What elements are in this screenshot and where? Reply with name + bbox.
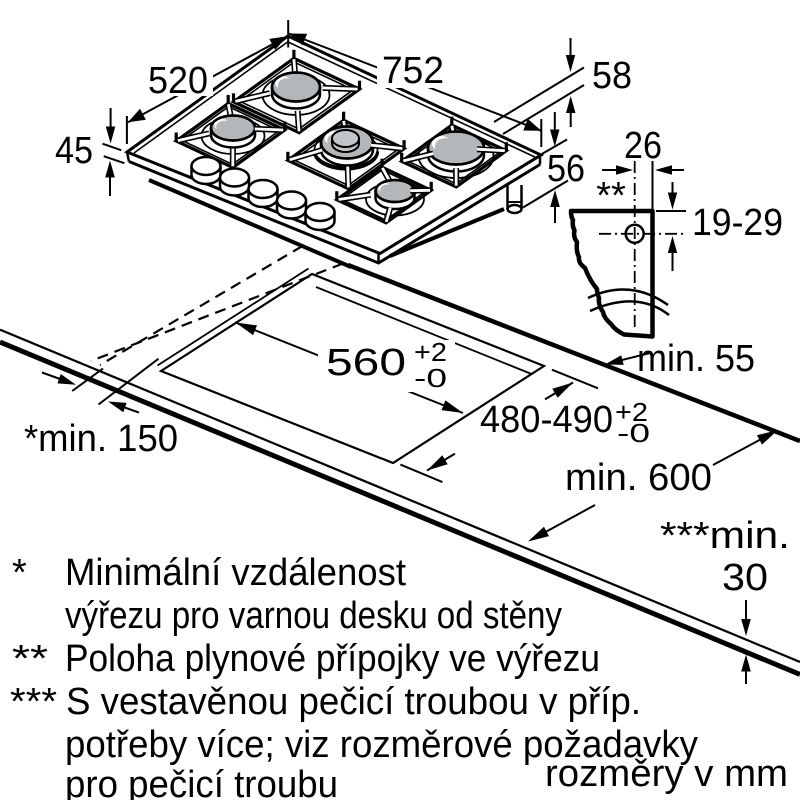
svg-text:752: 752 bbox=[382, 50, 444, 92]
svg-text:***: *** bbox=[10, 681, 57, 723]
svg-text:**: ** bbox=[12, 638, 48, 680]
svg-text:*: * bbox=[12, 552, 27, 594]
svg-text:30: 30 bbox=[722, 557, 768, 599]
svg-text:Minimální vzdálenost: Minimální vzdálenost bbox=[65, 552, 406, 594]
svg-text:560: 560 bbox=[326, 342, 406, 384]
svg-text:S vestavěnou pečicí troubou v: S vestavěnou pečicí troubou v příp. bbox=[66, 681, 641, 723]
svg-text:**: ** bbox=[596, 175, 626, 217]
svg-text:min. 55: min. 55 bbox=[637, 338, 755, 380]
svg-text:výřezu pro varnou desku od stě: výřezu pro varnou desku od stěny bbox=[65, 595, 562, 637]
svg-text:480-490: 480-490 bbox=[480, 399, 613, 441]
svg-text:min. 600: min. 600 bbox=[565, 457, 712, 499]
svg-text:***min.: ***min. bbox=[660, 515, 790, 557]
svg-text:45: 45 bbox=[55, 130, 93, 172]
svg-text:pro pečicí troubu: pro pečicí troubu bbox=[65, 764, 338, 800]
svg-text:-0: -0 bbox=[414, 363, 447, 393]
svg-text:Poloha plynové přípojky ve výř: Poloha plynové přípojky ve výřezu bbox=[65, 638, 600, 680]
svg-text:58: 58 bbox=[592, 55, 632, 97]
svg-text:*min. 150: *min. 150 bbox=[24, 418, 178, 460]
svg-text:56: 56 bbox=[547, 148, 585, 190]
svg-text:-0: -0 bbox=[617, 418, 650, 448]
svg-text:520: 520 bbox=[148, 60, 208, 102]
svg-text:19-29: 19-29 bbox=[692, 202, 783, 244]
svg-text:rozměry v mm: rozměry v mm bbox=[545, 753, 788, 795]
svg-text:26: 26 bbox=[624, 125, 662, 167]
